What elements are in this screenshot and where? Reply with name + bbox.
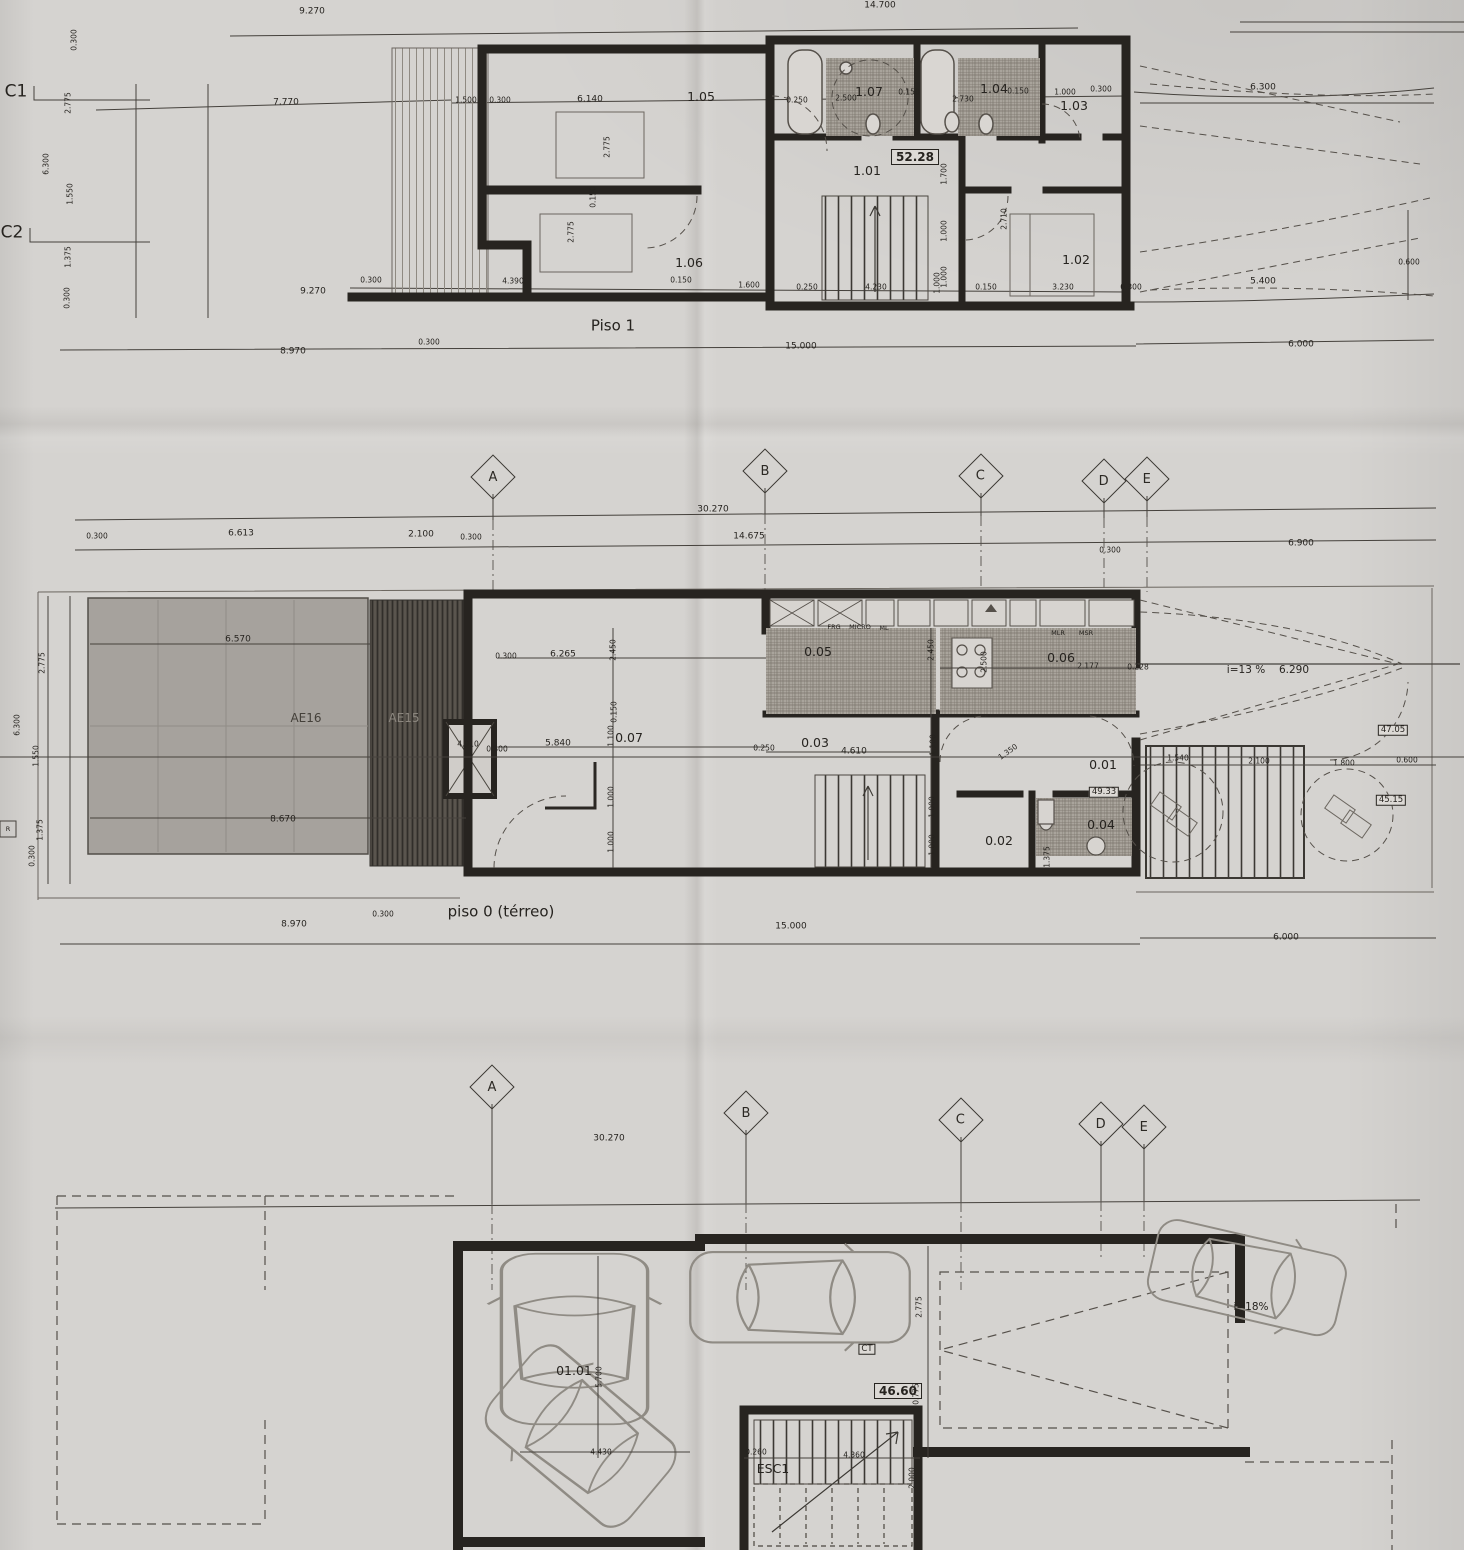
dimension-label: 14.675 [733, 533, 765, 542]
dimension-label: 1.375 [1043, 846, 1051, 867]
plan-sheet: 9.27014.700C17.7700.3002.7756.3001.550C2… [0, 0, 1464, 1550]
plan-title: piso 0 (térreo) [448, 905, 555, 920]
dimension-label: 9.270 [299, 8, 325, 17]
room-label: 1.02 [1062, 254, 1090, 267]
dimension-label: 0.150 [975, 283, 996, 291]
dimension-label: 0.300 [1090, 85, 1111, 93]
dimension-label: 4.390 [502, 277, 523, 285]
dimension-label: 2.450 [609, 639, 617, 660]
dimension-label: 30.270 [697, 506, 729, 515]
dimension-label: 8.970 [280, 348, 306, 357]
grid-marker-letter: E [1143, 472, 1151, 487]
dimension-label: 6.300 [1250, 84, 1276, 93]
dimension-label: 1.700 [940, 163, 948, 184]
grid-marker-B: B [723, 1090, 768, 1135]
dimension-label: 0.228 [1127, 663, 1148, 671]
dimension-label: 6.140 [577, 96, 603, 105]
dimension-label: 0.260 [745, 1448, 766, 1456]
dimension-label: 2.000 [908, 1467, 916, 1488]
room-label: 1.04 [980, 83, 1008, 96]
dimension-label: 2.775 [915, 1296, 923, 1317]
zone-label: AE15 [388, 712, 419, 724]
dimension-label: 1.375 [64, 246, 72, 267]
dimension-label: 4.230 [865, 283, 886, 291]
dimension-label: 1.540 [1167, 754, 1188, 762]
dimension-label: 1.000 [928, 834, 936, 855]
dimension-label: 2.450 [927, 639, 935, 660]
dimension-label: 0.150 [670, 276, 691, 284]
dimension-label: 2.775 [38, 652, 46, 673]
dimension-label: 2.100 [408, 531, 434, 540]
dimension-label: 0.150 [610, 701, 618, 722]
room-label: 0.02 [985, 835, 1013, 848]
appliance-label: MLR [1051, 630, 1065, 637]
dimension-label: 0.300 [372, 910, 393, 918]
dimension-label: 0.300 [1120, 283, 1141, 291]
dimension-label: 4.610 [841, 748, 867, 757]
grid-marker-letter: B [761, 463, 770, 478]
dimension-label: 6.613 [228, 530, 254, 539]
dimension-label: 0.150 [898, 88, 919, 96]
dimension-label: 0.300 [460, 533, 481, 541]
dimension-label: 2.100 [1248, 757, 1269, 765]
grid-marker-D: D [1078, 1101, 1123, 1146]
room-label: 0.04 [1087, 819, 1115, 832]
dimension-label: 15.000 [785, 343, 817, 352]
grid-marker-A: A [470, 454, 515, 499]
dimension-label: 1.800 [1333, 759, 1354, 767]
dimension-label: 2.500 [835, 94, 856, 102]
dimension-label: 6.265 [550, 651, 576, 660]
room-label: 01.01 [556, 1365, 592, 1378]
dimension-label: 7.770 [273, 99, 299, 108]
dimension-label: 6.000 [1288, 341, 1314, 350]
dimension-label: 6.300 [13, 714, 21, 735]
appliance-label: ML [879, 625, 888, 632]
dimension-label: 0.300 [495, 652, 516, 660]
dimension-label: 6.000 [1273, 934, 1299, 943]
dimension-label: 1.100 [929, 734, 937, 755]
grid-marker-C: C [958, 453, 1003, 498]
grid-marker-E: E [1124, 456, 1169, 501]
room-label: 0.06 [1047, 652, 1075, 665]
dimension-label: 1.550 [66, 183, 74, 204]
dimension-label: 2.730 [952, 95, 973, 103]
dimension-label: 1.000 [607, 831, 615, 852]
dimension-label: 1.000 [928, 796, 936, 817]
dimension-label: 0.600 [1396, 756, 1417, 764]
area-badge: 52.28 [891, 149, 939, 165]
dimension-label: 0.250 [753, 744, 774, 752]
zone-label: AE16 [290, 712, 321, 724]
dimension-label: 2.177 [1077, 662, 1098, 670]
labels-layer: 9.27014.700C17.7700.3002.7756.3001.550C2… [0, 0, 1464, 1550]
dimension-label: 14.700 [864, 2, 896, 11]
dimension-label: 6.300 [42, 153, 50, 174]
area-badge: 49.33 [1089, 787, 1119, 798]
dimension-label: 2.500 [980, 651, 988, 672]
grid-marker-E: E [1121, 1104, 1166, 1149]
dimension-label: 6.570 [225, 636, 251, 645]
dimension-label: 2.775 [603, 136, 611, 157]
room-label: ESC1 [757, 1463, 790, 1476]
area-badge: 47.05 [1378, 725, 1408, 736]
appliance-label: MSR [1079, 630, 1093, 637]
dimension-label: 2.710 [1000, 208, 1008, 229]
dimension-label: 15.000 [775, 923, 807, 932]
room-label: 0.07 [615, 732, 643, 745]
grid-marker-letter: E [1140, 1120, 1148, 1135]
appliance-label: FRG [827, 624, 840, 631]
dimension-label: 0.300 [86, 532, 107, 540]
dimension-label: 1.000 [940, 220, 948, 241]
dimension-label: 30.270 [593, 1135, 625, 1144]
dimension-label: 2.775 [567, 221, 575, 242]
room-label: 0.03 [801, 737, 829, 750]
dimension-label: 8.970 [281, 921, 307, 930]
room-label: 0.01 [1089, 759, 1117, 772]
grid-marker-letter: D [1099, 473, 1109, 488]
dimension-label: 0.300 [70, 29, 78, 50]
dimension-label: 1.100 [607, 725, 615, 746]
dimension-label: 4.430 [590, 1448, 611, 1456]
room-label: 1.01 [853, 165, 881, 178]
dimension-label: 4.910 [457, 740, 478, 748]
dimension-label: 1.500 [455, 96, 476, 104]
dimension-label: 8.670 [270, 816, 296, 825]
grid-marker-A: A [469, 1064, 514, 1109]
section-marker-label: C1 [5, 84, 28, 101]
appliance-label: MICRO [849, 624, 871, 631]
plan-title: Piso 1 [591, 319, 635, 334]
area-badge: 45.15 [1376, 795, 1406, 806]
dimension-label: 1.000 [1054, 88, 1075, 96]
dimension-label: 2.775 [64, 92, 72, 113]
dimension-label: 1.550 [32, 745, 40, 766]
dimension-label: 0.250 [786, 96, 807, 104]
grid-marker-letter: C [956, 1112, 965, 1127]
dimension-label: 1.375 [36, 819, 44, 840]
dimension-label: 0.300 [360, 276, 381, 284]
grid-marker-letter: D [1096, 1116, 1106, 1131]
room-label: 1.03 [1060, 100, 1088, 113]
dimension-label: 5.840 [545, 740, 571, 749]
dimension-label: 3.230 [1052, 283, 1073, 291]
room-label: 0.05 [804, 646, 832, 659]
room-label: 1.05 [687, 91, 715, 104]
grid-marker-letter: C [976, 468, 985, 483]
dimension-label: 0.300 [418, 338, 439, 346]
dimension-label: 6.900 [1288, 540, 1314, 549]
slope-note: i=13 % [1227, 665, 1265, 676]
dimension-label: 0.300 [486, 745, 507, 753]
dimension-label: 4.360 [843, 1451, 864, 1459]
dimension-label: 0.300 [63, 287, 71, 308]
grid-marker-letter: A [489, 470, 498, 485]
dimension-label: 1.000 [607, 786, 615, 807]
room-label: 1.07 [855, 86, 883, 99]
dimension-label: 1.350 [997, 743, 1019, 761]
dimension-label: 5.400 [1250, 278, 1276, 287]
grid-marker-letter: B [742, 1105, 751, 1120]
dimension-label: 0.600 [1398, 258, 1419, 266]
dimension-label: 9.270 [300, 288, 326, 297]
room-label: 1.06 [675, 257, 703, 270]
dimension-label: 0.250 [796, 283, 817, 291]
grid-marker-B: B [742, 448, 787, 493]
grid-marker-letter: A [488, 1080, 497, 1095]
grid-marker-D: D [1081, 458, 1126, 503]
dimension-label: 0.300 [489, 96, 510, 104]
dimension-label: 1.000 [933, 272, 941, 293]
dimension-label: 0.775 [912, 1383, 920, 1404]
grid-marker-C: C [938, 1097, 983, 1142]
appliance-label: R [6, 826, 11, 833]
area-badge: CT [858, 1344, 875, 1355]
dimension-label: 1.600 [738, 281, 759, 289]
dimension-label: 0.150 [1007, 87, 1028, 95]
section-marker-label: C2 [1, 225, 24, 242]
dimension-label: 0.300 [1099, 546, 1120, 554]
dimension-label: 5.700 [595, 1366, 603, 1387]
dimension-label: 0.150 [589, 186, 597, 207]
dimension-label: 0.300 [28, 845, 36, 866]
slope-note: i=18% [1233, 1302, 1268, 1313]
slope-note: 6.290 [1279, 665, 1309, 676]
dimension-label: 1.000 [940, 266, 948, 287]
